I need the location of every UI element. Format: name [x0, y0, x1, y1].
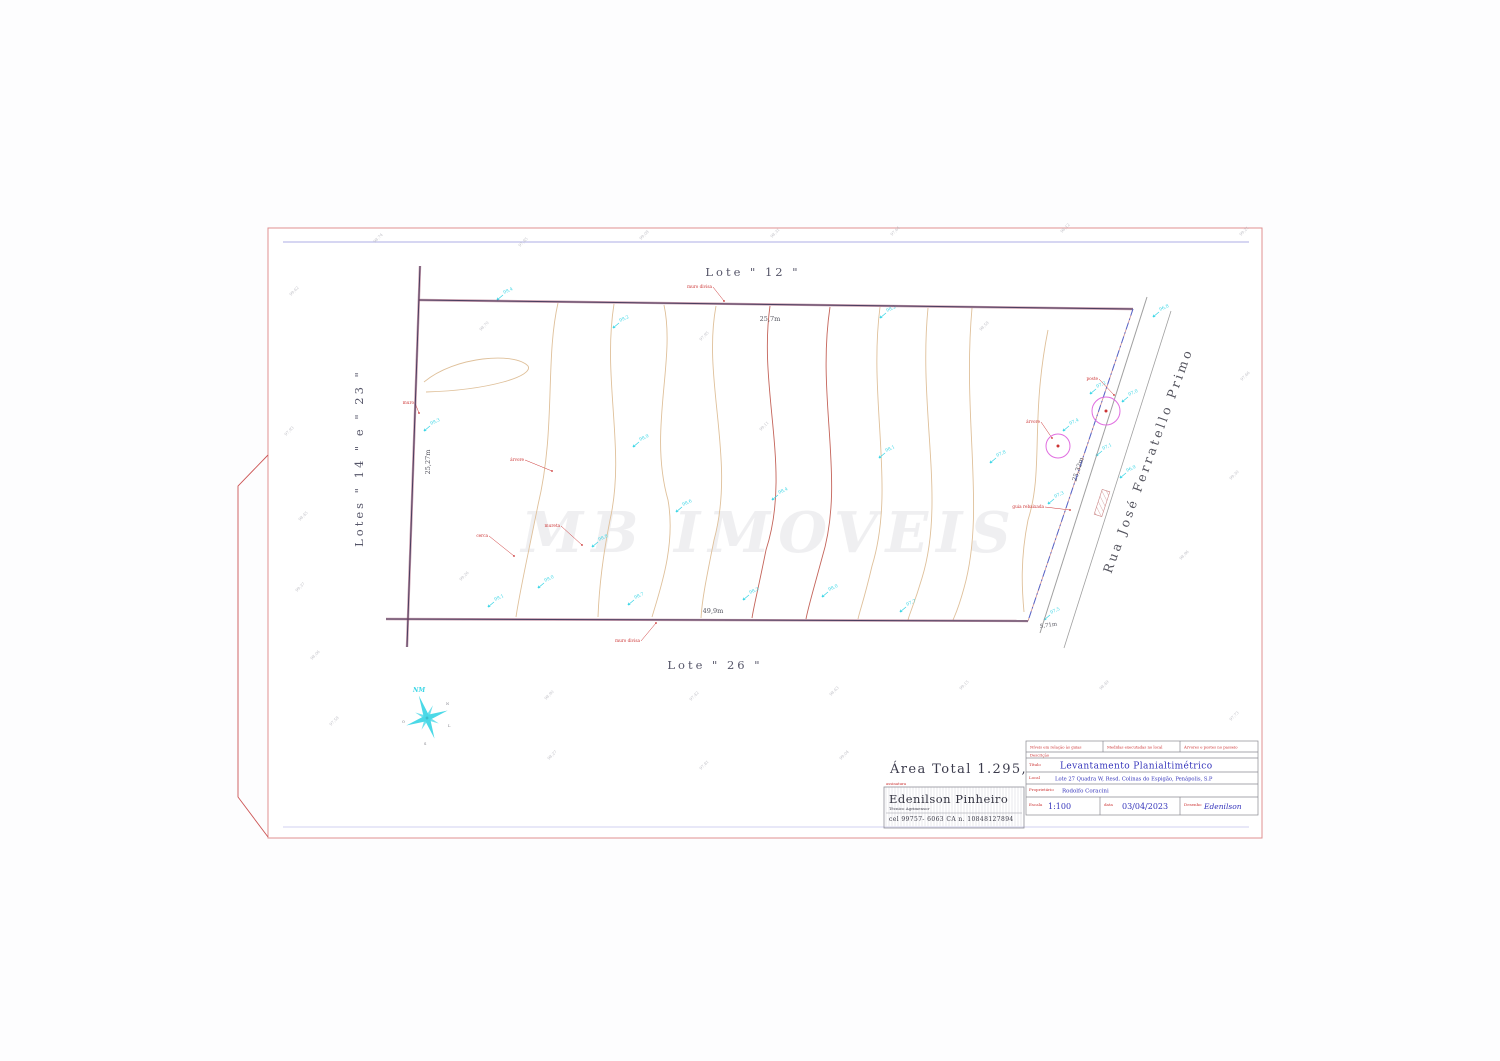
titleblock-local-value: Lote 27 Quadra W, Resd. Colinas do Espig… — [1055, 776, 1213, 783]
red-annotation-label: muro — [403, 400, 415, 405]
survey-drawing: MB IMOVEIS 99,6298,7497,8599,0898,3197,6… — [0, 0, 1500, 1061]
red-annotation-point — [581, 544, 583, 546]
titleblock-note-2: Medidas executadas no local — [1107, 745, 1163, 750]
surveyor-name: Edenilson Pinheiro — [889, 792, 1008, 806]
compass-direction-label: N — [446, 702, 449, 706]
red-annotation-label: muro divisa — [687, 284, 712, 289]
compass-nm-label: NM — [412, 687, 425, 694]
titleblock-proprietario-label: Proprietário — [1029, 787, 1054, 792]
dimension-top: 25,7m — [760, 315, 781, 323]
dimension-left: 25,27m — [424, 450, 432, 475]
red-annotation-point — [1051, 437, 1053, 439]
titleblock-data-value: 03/04/2023 — [1122, 802, 1168, 811]
titleblock-escala-label: Escala — [1029, 802, 1043, 807]
compass-direction-label: O — [402, 720, 405, 724]
red-annotation-point — [655, 622, 657, 624]
page-fold-outline — [238, 455, 268, 837]
surveyor-card-tag: assinatura — [886, 781, 907, 786]
titleblock-note-3: Árvores e postes no passeio — [1183, 745, 1238, 750]
red-annotation-label: guia rebaixada — [1012, 504, 1044, 509]
red-annotation-point — [551, 470, 553, 472]
red-annotation-label: mureta — [545, 523, 561, 528]
titleblock-titulo-label: Título — [1029, 762, 1041, 767]
red-annotation-label: árvore — [1026, 419, 1040, 424]
titleblock-escala-value: 1:100 — [1048, 802, 1071, 811]
red-annotation-label: árvore — [510, 457, 524, 462]
red-annotation-point — [1113, 394, 1115, 396]
lot-label-bottom: Lote " 26 " — [667, 658, 762, 672]
surveyor-role: Técnico Agrimensor — [889, 806, 930, 811]
lot-label-top: Lote " 12 " — [705, 265, 800, 279]
red-annotation-label: poste — [1086, 376, 1098, 381]
red-annotation-label: muro divisa — [615, 638, 640, 643]
titleblock-descricao-label: Descrição — [1030, 753, 1050, 758]
red-annotation-point — [513, 555, 515, 557]
red-annotation-point — [418, 412, 420, 414]
red-annotation-point — [723, 300, 725, 302]
survey-sheet-canvas: { "drawing": { "lots": { "top": "Lote \"… — [0, 0, 1500, 1061]
title-block: Níveis em relação às guias Medidas execu… — [1026, 741, 1258, 815]
surveyor-card: assinatura Edenilson Pinheiro Técnico Ag… — [884, 781, 1024, 828]
red-annotation-label: cerca — [476, 533, 488, 538]
titleblock-data-label: data — [1104, 802, 1114, 807]
titleblock-proprietario-value: Rodolfo Coracini — [1062, 789, 1109, 795]
surveyor-phone: cel 99757- 6063 CA n. 10848127894 — [889, 816, 1014, 823]
titleblock-desenho-value: Edenilson — [1203, 802, 1242, 811]
dimension-bottom: 49,9m — [703, 607, 724, 615]
titleblock-local-label: Local — [1029, 775, 1041, 780]
watermark-text: MB IMOVEIS — [519, 500, 1019, 566]
titleblock-desenho-label: Desenho — [1184, 802, 1202, 807]
titleblock-titulo-value: Levantamento Planialtimétrico — [1060, 761, 1213, 772]
titleblock-note-1: Níveis em relação às guias — [1030, 745, 1082, 750]
red-annotation-point — [1069, 509, 1071, 511]
lot-label-left: Lotes " 14 " e " 23 " — [352, 369, 366, 547]
